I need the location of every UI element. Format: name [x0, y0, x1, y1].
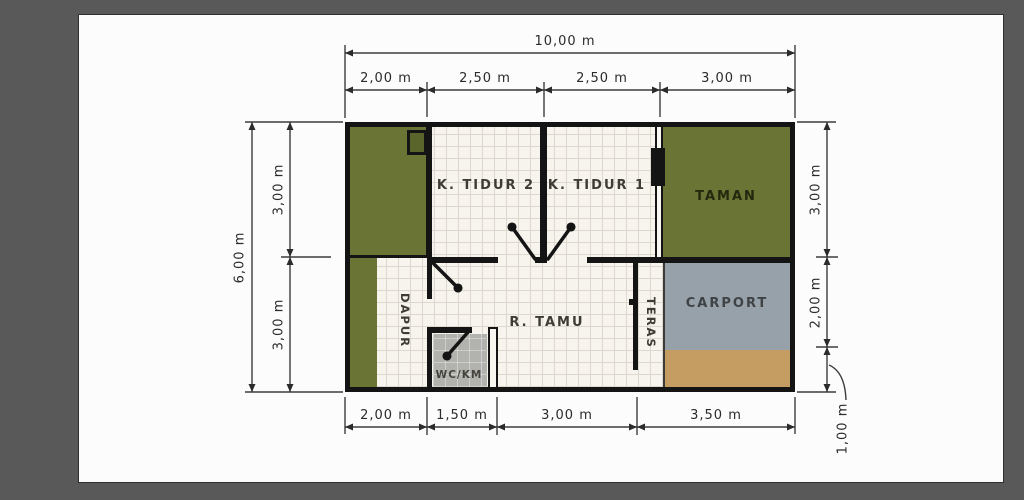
wall-teras-left: [633, 263, 638, 370]
dim-bottom-seg-4: 3,50 m: [666, 408, 766, 423]
wall-garden-dapur: [350, 255, 432, 258]
dim-bottom-seg-3: 3,00 m: [517, 408, 617, 423]
wc-km-label: WC/KM: [430, 369, 488, 381]
dim-top-seg-3: 2,50 m: [552, 71, 652, 86]
dim-top-seg-1: 2,00 m: [336, 71, 436, 86]
dapur-label: DAPUR: [394, 276, 412, 366]
paving-strip-area: [665, 350, 790, 387]
line-teras-carport: [663, 263, 665, 387]
window-icon: [407, 130, 427, 155]
dim-right-seg-2: 2,00 m: [809, 268, 824, 338]
floorplan: K. TIDUR 2 K. TIDUR 1 TAMAN CARPORT R. T…: [345, 122, 795, 392]
dim-left-seg-1: 3,00 m: [272, 155, 287, 225]
wall-bedroom-divider: [540, 127, 547, 263]
wall-bedrooms-bottom-left: [427, 257, 498, 263]
dim-right-seg-3: 1,00 m: [836, 394, 851, 464]
dim-left-total: 6,00 m: [233, 223, 248, 293]
wall-wc-right: [488, 327, 498, 387]
door-knob-icon: [629, 299, 634, 305]
k-tidur-1-label: K. TIDUR 1: [537, 178, 657, 193]
dim-left-seg-2: 3,00 m: [272, 290, 287, 360]
k-tidur-2-label: K. TIDUR 2: [426, 178, 546, 193]
wall-bedrooms-bottom-center: [535, 257, 547, 263]
wall-wc-top: [430, 327, 472, 333]
garden-strip-left: [350, 253, 377, 387]
dim-top-seg-4: 3,00 m: [677, 71, 777, 86]
taman-label: TAMAN: [666, 189, 786, 204]
dim-top-seg-2: 2,50 m: [435, 71, 535, 86]
wall-bedrooms-bottom-right: [587, 257, 790, 263]
teras-label: TERAS: [641, 279, 658, 367]
r-tamu-label: R. TAMU: [487, 315, 607, 330]
screen: K. TIDUR 2 K. TIDUR 1 TAMAN CARPORT R. T…: [0, 0, 1024, 500]
dim-right-seg-1: 3,00 m: [809, 155, 824, 225]
carport-label: CARPORT: [667, 296, 787, 311]
dim-top-total: 10,00 m: [515, 34, 615, 49]
dim-bottom-seg-2: 1,50 m: [412, 408, 512, 423]
wall-dapur-upper: [427, 256, 432, 299]
